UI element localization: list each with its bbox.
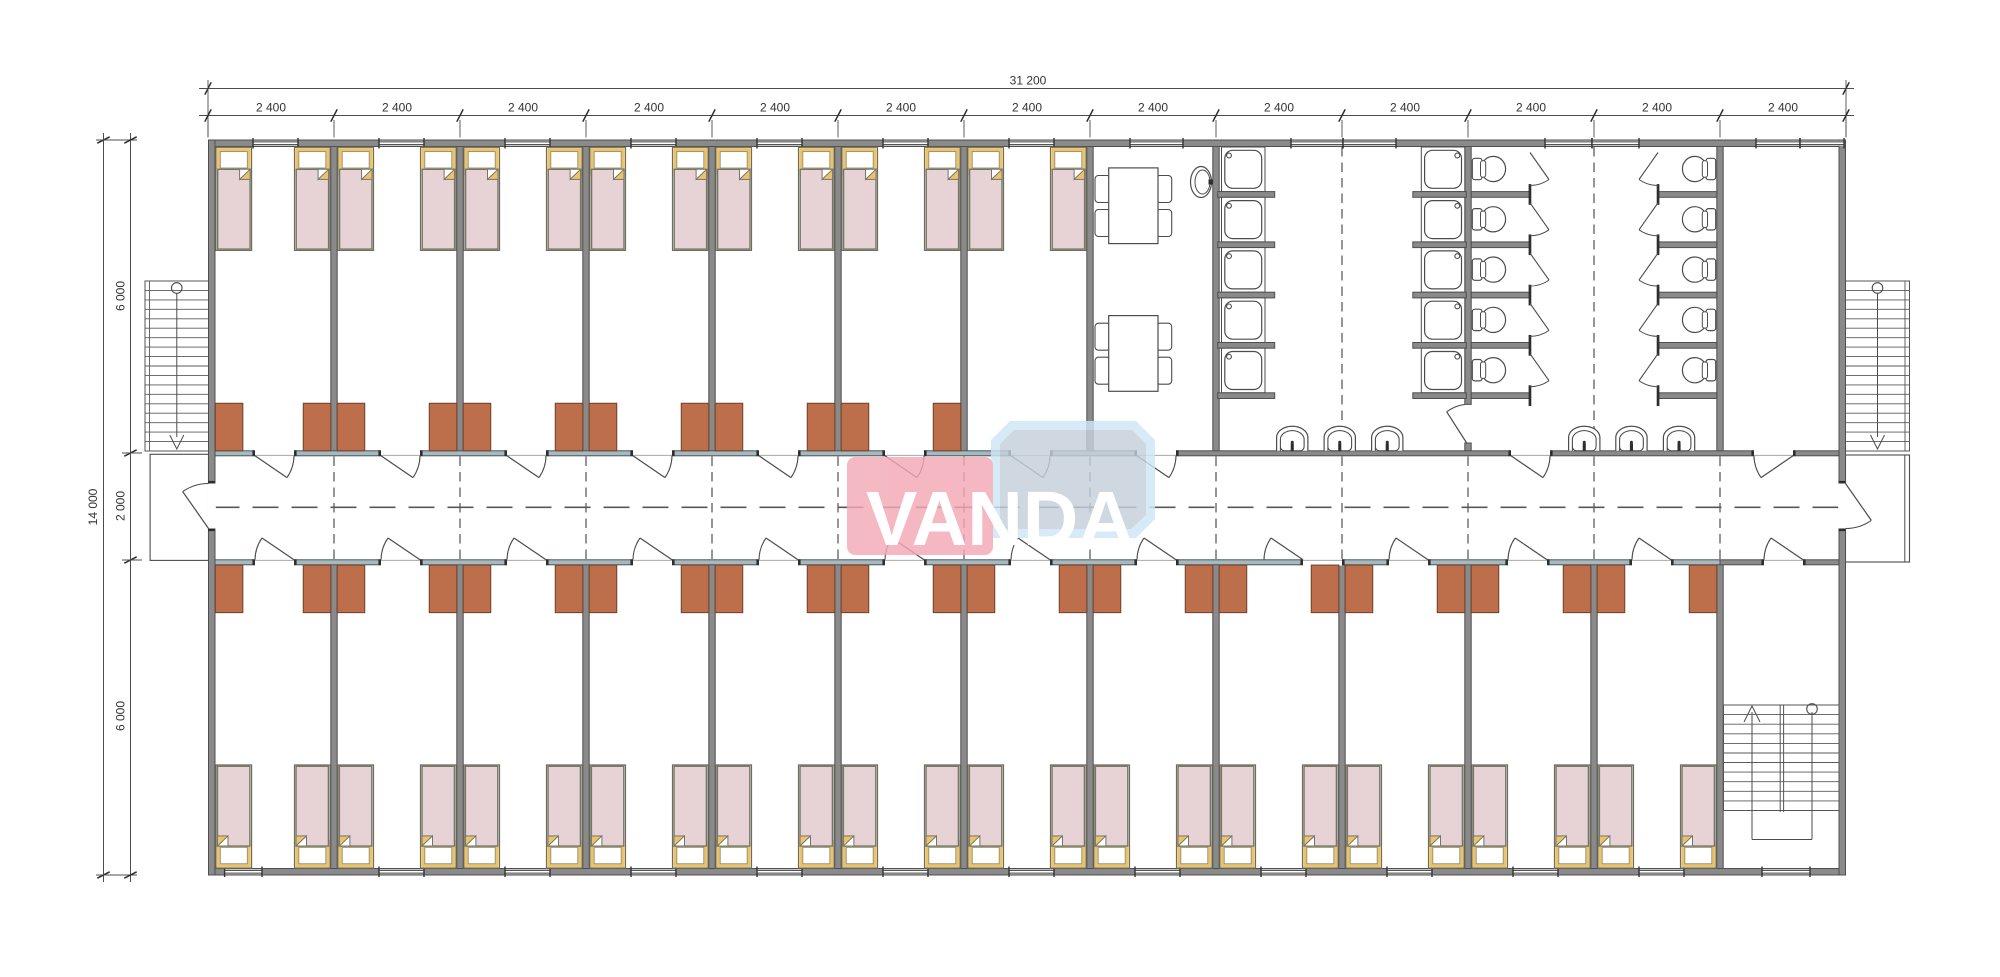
- svg-text:2 400: 2 400: [1768, 101, 1798, 115]
- svg-text:6 000: 6 000: [114, 281, 128, 311]
- svg-text:2 400: 2 400: [760, 101, 790, 115]
- svg-text:2 400: 2 400: [634, 101, 664, 115]
- svg-text:2 400: 2 400: [508, 101, 538, 115]
- svg-text:VANDA: VANDA: [866, 476, 1134, 562]
- svg-text:2 400: 2 400: [1390, 101, 1420, 115]
- svg-text:2 000: 2 000: [114, 491, 128, 521]
- svg-text:31 200: 31 200: [1010, 74, 1047, 88]
- svg-text:2 400: 2 400: [256, 101, 286, 115]
- svg-text:2 400: 2 400: [1516, 101, 1546, 115]
- svg-text:2 400: 2 400: [1642, 101, 1672, 115]
- svg-text:2 400: 2 400: [382, 101, 412, 115]
- svg-text:6 000: 6 000: [114, 701, 128, 731]
- svg-text:14 000: 14 000: [86, 488, 100, 525]
- svg-text:2 400: 2 400: [886, 101, 916, 115]
- svg-text:2 400: 2 400: [1138, 101, 1168, 115]
- svg-text:2 400: 2 400: [1012, 101, 1042, 115]
- svg-text:2 400: 2 400: [1264, 101, 1294, 115]
